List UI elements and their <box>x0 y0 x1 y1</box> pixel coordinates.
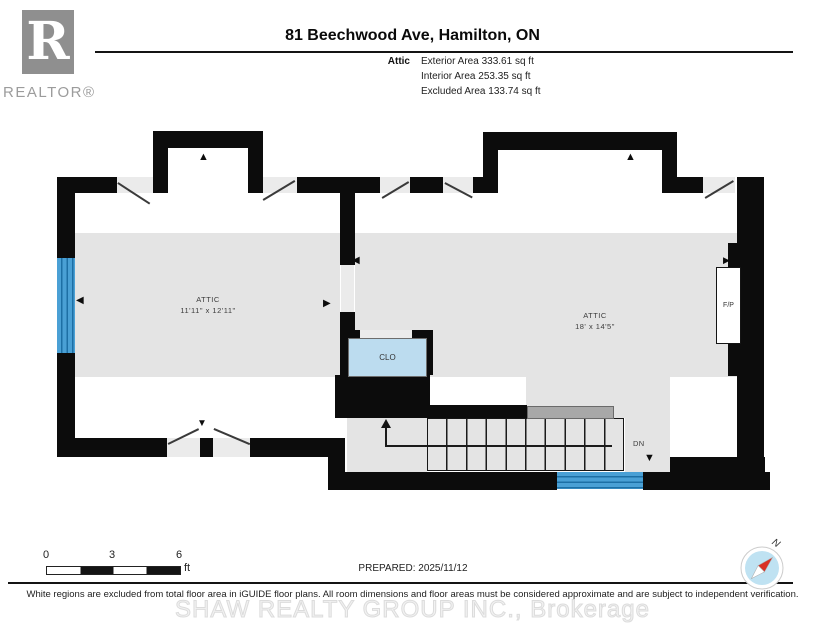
top-wall-a <box>57 177 117 193</box>
down-label: DN <box>633 439 644 448</box>
door-opening <box>703 177 735 193</box>
left-dormer-top <box>153 131 263 148</box>
french-door-post <box>200 438 213 457</box>
fireplace: F/P <box>716 267 741 344</box>
left-dormer-right <box>248 131 263 193</box>
opening-arrow-left-icon: ◀ <box>76 296 84 306</box>
room-name: ATTIC <box>535 311 655 322</box>
opening-arrow-left-icon: ◀ <box>352 256 360 266</box>
stair-run-line <box>385 445 612 447</box>
top-wall-c <box>410 177 443 193</box>
closet-base-block <box>335 375 430 418</box>
bottom-wall-left <box>57 438 167 457</box>
stair-run-line <box>385 428 387 446</box>
door-opening <box>263 177 297 193</box>
opening-arrow-right-icon: ▶ <box>323 299 331 309</box>
brokerage-watermark: SHAW REALTY GROUP INC., Brokerage <box>0 596 825 624</box>
closet-label: CLO <box>379 353 395 362</box>
closet-door-opening <box>360 330 412 338</box>
closet-top-wall <box>348 330 360 338</box>
compass-icon <box>739 545 785 591</box>
top-wall-d <box>473 177 483 193</box>
interior-area: Interior Area 253.35 sq ft <box>421 71 641 82</box>
excluded-area: Excluded Area 133.74 sq ft <box>421 86 641 97</box>
realtor-logo-text: REALTOR® <box>3 84 113 101</box>
room-dims: 11'11" x 12'11" <box>148 306 268 317</box>
window <box>557 472 643 489</box>
scale-tick-6: 6 <box>169 549 189 561</box>
page-title: 81 Beechwood Ave, Hamilton, ON <box>0 27 825 45</box>
white-cutout <box>433 377 526 405</box>
closet-left-wall <box>340 330 348 375</box>
door-arrow-down-icon: ▼ <box>197 419 207 429</box>
window <box>57 258 75 353</box>
right-dormer-top <box>483 132 677 150</box>
header-divider <box>95 51 793 53</box>
floorplan-page: R REALTOR® 81 Beechwood Ave, Hamilton, O… <box>0 0 825 637</box>
disclaimer-text: White regions are excluded from total fl… <box>0 589 825 600</box>
scale-tick-3: 3 <box>102 549 122 561</box>
divider-wall-upper <box>340 177 355 265</box>
room-label-right: ATTIC 18' x 14'5" <box>535 311 655 333</box>
top-wall-e <box>677 177 703 193</box>
prepared-date: PREPARED: 2025/11/12 <box>313 563 513 574</box>
scale-unit: ft <box>184 562 190 574</box>
closet: CLO <box>348 338 427 377</box>
bottom-right-block <box>670 457 765 490</box>
opening-arrow-up-icon: ▲ <box>625 152 636 163</box>
exterior-area: Exterior Area 333.61 sq ft <box>421 56 641 67</box>
fireplace-label: F/P <box>723 302 734 309</box>
opening-arrow-right-icon: ▶ <box>723 256 730 265</box>
interior-opening <box>341 265 354 312</box>
scale-bar <box>46 566 181 575</box>
footer-divider <box>8 582 793 584</box>
top-wall-b <box>297 177 380 193</box>
right-wall <box>737 177 764 490</box>
room-name: ATTIC <box>148 295 268 306</box>
stair-entry-arrow-icon: ▼ <box>644 453 655 464</box>
opening-arrow-up-icon: ▲ <box>198 152 209 163</box>
left-dormer-left <box>153 131 168 193</box>
room-label-left: ATTIC 11'11" x 12'11" <box>148 295 268 317</box>
right-dormer-right <box>662 132 677 193</box>
bottom-wall-stairs <box>330 472 557 490</box>
stair-handrail <box>527 406 614 419</box>
room-dims: 18' x 14'5" <box>535 322 655 333</box>
scale-tick-0: 0 <box>36 549 56 561</box>
floor-label: Attic <box>330 56 410 67</box>
stair-up-arrow-icon <box>381 419 391 428</box>
stair-top-wall <box>430 405 527 418</box>
right-dormer-left <box>483 132 498 193</box>
